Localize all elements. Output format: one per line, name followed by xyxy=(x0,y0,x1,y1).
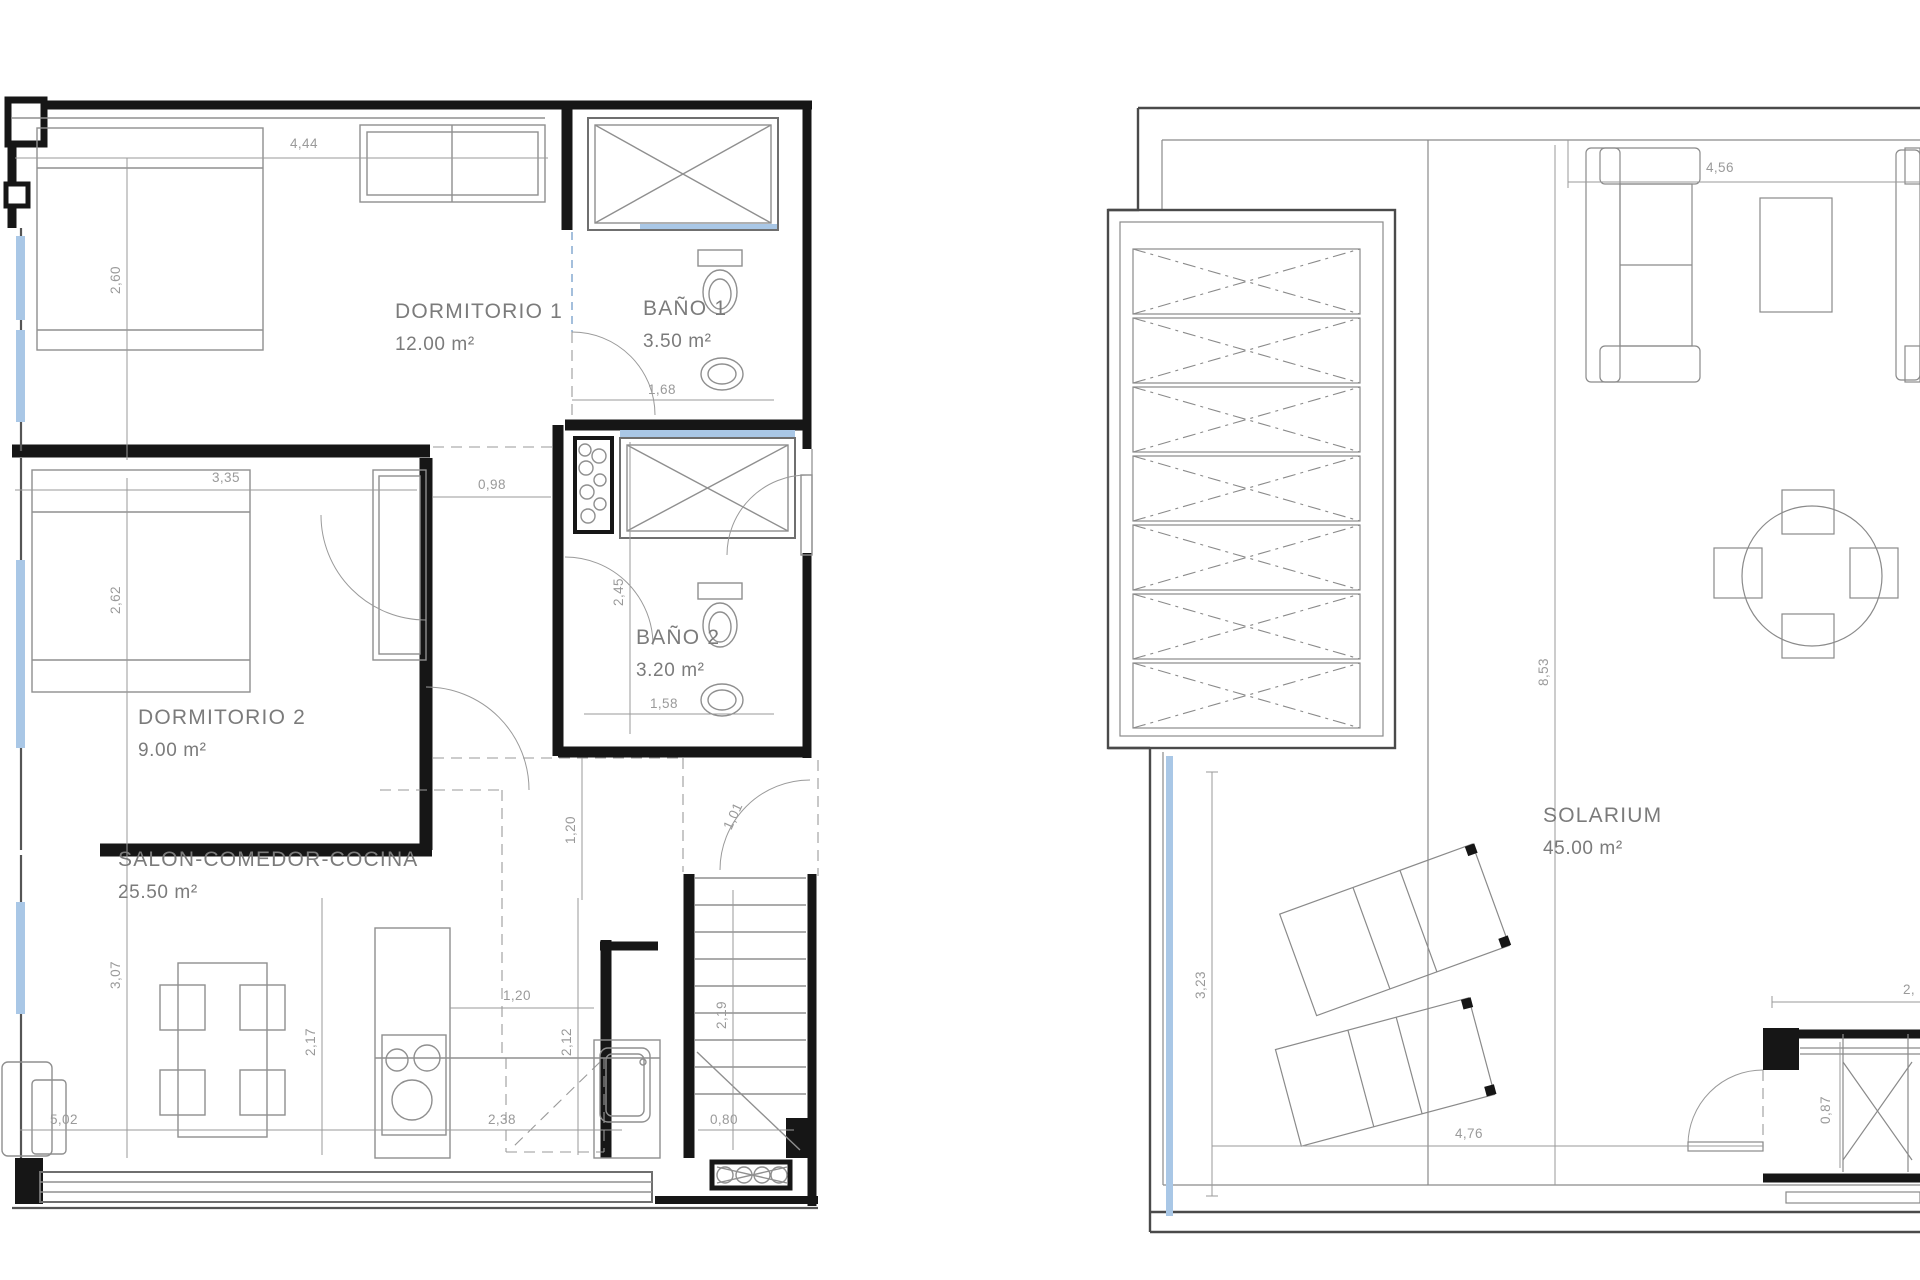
dim-2_45: 2,45 xyxy=(611,578,626,606)
room-label-bano2: BAÑO 2 xyxy=(636,625,720,649)
round-dining-set xyxy=(1714,490,1898,658)
sink-2 xyxy=(701,684,743,716)
outdoor-sofa xyxy=(1586,148,1700,382)
solarium-furniture xyxy=(1275,148,1920,1146)
dim-3_35: 3,35 xyxy=(212,470,240,485)
dim-4_76: 4,76 xyxy=(1455,1126,1483,1141)
chair xyxy=(160,1070,205,1115)
dim-0_98: 0,98 xyxy=(478,477,506,492)
dim-3_07: 3,07 xyxy=(108,961,123,989)
room-area-dormitorio2: 9.00 m² xyxy=(138,740,207,761)
dining-table xyxy=(160,963,285,1137)
coffee-table xyxy=(1760,198,1832,312)
room-label-dormitorio2: DORMITORIO 2 xyxy=(138,706,306,729)
dim-4_56: 4,56 xyxy=(1706,160,1734,175)
door-arc-stairwell xyxy=(1688,1070,1763,1145)
chair xyxy=(1850,548,1898,598)
entry-door-leaf xyxy=(801,475,812,555)
right-plan: 4,56 8,53 3,23 4,76 0,87 2, SOLARIUM 45.… xyxy=(1108,108,1920,1232)
bed-1 xyxy=(37,128,263,350)
stairwell xyxy=(1688,1028,1920,1203)
left-plan: 4,44 2,60 1,68 3,35 0,98 2,62 2,45 1,58 … xyxy=(2,100,818,1208)
armchair xyxy=(2,1062,66,1156)
outdoor-sofa-right xyxy=(1896,148,1920,382)
bottom-right-pillar xyxy=(786,1118,812,1158)
pergola-louvres xyxy=(1133,249,1360,728)
floorplan-canvas: 4,44 2,60 1,68 3,35 0,98 2,62 2,45 1,58 … xyxy=(0,0,1920,1280)
dim-1_20-h: 1,20 xyxy=(503,988,531,1003)
dim-8_53: 8,53 xyxy=(1536,658,1551,686)
cooktop xyxy=(382,1035,446,1135)
dim-1_20-v: 1,20 xyxy=(563,816,578,844)
floorplan-drawing: 4,44 2,60 1,68 3,35 0,98 2,62 2,45 1,58 … xyxy=(0,0,1920,1280)
room-label-solarium: SOLARIUM xyxy=(1543,804,1662,827)
dim-1_01: 1,01 xyxy=(720,800,745,832)
kitchen-counter xyxy=(375,928,660,1158)
wardrobe-2 xyxy=(373,470,426,660)
dim-5_02: 5,02 xyxy=(50,1112,78,1127)
chair xyxy=(1782,490,1834,534)
dim-2_12: 2,12 xyxy=(559,1028,574,1056)
bottom-left-pillar xyxy=(15,1158,43,1204)
bed-2 xyxy=(32,470,250,692)
dim-2_60: 2,60 xyxy=(108,266,123,294)
door-arc-hall xyxy=(426,687,529,790)
corner-pillar xyxy=(8,100,44,144)
terrace-window-band xyxy=(40,1172,652,1202)
pergola xyxy=(1108,210,1395,748)
staircase xyxy=(695,878,806,1150)
room-area-bano1: 3.50 m² xyxy=(643,331,712,352)
glass-balustrade xyxy=(1166,756,1173,1216)
dim-4_44: 4,44 xyxy=(290,136,318,151)
room-label-salon: SALON-COMEDOR-COCINA xyxy=(118,848,419,871)
dim-0_87: 0,87 xyxy=(1818,1096,1833,1124)
room-area-solarium: 45.00 m² xyxy=(1543,838,1623,859)
sun-lounger-1 xyxy=(1280,843,1511,1015)
chair xyxy=(1782,614,1834,658)
room-area-bano2: 3.20 m² xyxy=(636,660,705,681)
dim-0_80: 0,80 xyxy=(710,1112,738,1127)
bathroom-1-fixtures xyxy=(572,118,778,415)
dim-1_68: 1,68 xyxy=(648,382,676,397)
room-label-dormitorio1: DORMITORIO 1 xyxy=(395,300,563,323)
right-plan-room-labels: SOLARIUM 45.00 m² xyxy=(1543,804,1662,859)
chair xyxy=(240,1070,285,1115)
dim-2_partial: 2, xyxy=(1903,982,1915,997)
chair xyxy=(240,985,285,1030)
room-label-bano1: BAÑO 1 xyxy=(643,296,727,320)
room-area-salon: 25.50 m² xyxy=(118,882,198,903)
facade-pillar xyxy=(6,184,28,206)
dim-3_23: 3,23 xyxy=(1193,971,1208,999)
room-area-dormitorio1: 12.00 m² xyxy=(395,334,475,355)
bedroom-2-furniture xyxy=(32,470,426,692)
dim-2_19: 2,19 xyxy=(714,1001,729,1029)
dim-2_38: 2,38 xyxy=(488,1112,516,1127)
chair xyxy=(160,985,205,1030)
vent-grille xyxy=(712,1162,790,1188)
shower-2 xyxy=(620,438,795,538)
zone-lines xyxy=(380,232,818,1152)
dim-2_62: 2,62 xyxy=(108,586,123,614)
dim-1_58: 1,58 xyxy=(650,696,678,711)
sink-1 xyxy=(701,358,743,390)
dim-2_17: 2,17 xyxy=(303,1028,318,1056)
utility-shaft xyxy=(575,438,612,532)
shower-1 xyxy=(588,118,778,230)
sun-lounger-2 xyxy=(1275,997,1496,1146)
chair xyxy=(1714,548,1762,598)
